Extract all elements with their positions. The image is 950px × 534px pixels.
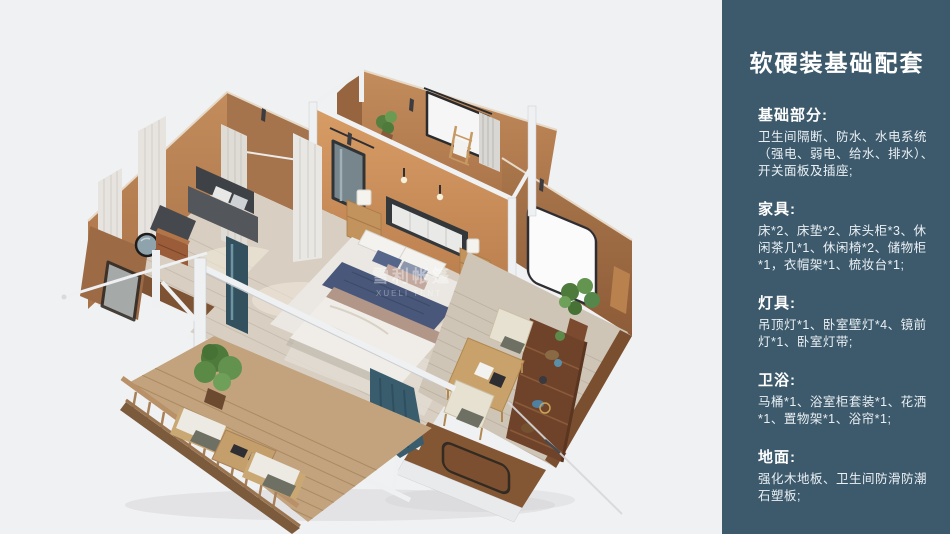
- spec-sections: 基础部分: 卫生间隔断、防水、水电系统（强电、弱电、给水、排水）、开关面板及插座…: [758, 104, 934, 505]
- section-body: 吊顶灯*1、卧室壁灯*4、镜前灯*1、卧室灯带;: [758, 317, 934, 351]
- watermark-cn: 雪利帐篷: [372, 266, 452, 286]
- spec-section-basics: 基础部分: 卫生间隔断、防水、水电系统（强电、弱电、给水、排水）、开关面板及插座…: [758, 104, 934, 180]
- spec-section-lighting: 灯具: 吊顶灯*1、卧室壁灯*4、镜前灯*1、卧室灯带;: [758, 292, 934, 351]
- section-heading: 地面:: [758, 446, 934, 467]
- section-heading: 卫浴:: [758, 369, 934, 390]
- info-sidebar: 软硬装基础配套 基础部分: 卫生间隔断、防水、水电系统（强电、弱电、给水、排水）…: [722, 0, 950, 534]
- watermark: 雪利帐篷 XUELI TENT: [372, 266, 452, 298]
- slide-root: 雪利帐篷 XUELI TENT 软硬装基础配套 基础部分: 卫生间隔断、防水、水…: [0, 0, 950, 534]
- section-body: 马桶*1、浴室柜套装*1、花洒*1、置物架*1、浴帘*1;: [758, 394, 934, 428]
- section-body: 卫生间隔断、防水、水电系统（强电、弱电、给水、排水）、开关面板及插座;: [758, 129, 934, 180]
- floorplan-render: 雪利帐篷 XUELI TENT: [0, 0, 722, 534]
- section-heading: 基础部分:: [758, 104, 934, 125]
- spec-section-bathroom: 卫浴: 马桶*1、浴室柜套装*1、花洒*1、置物架*1、浴帘*1;: [758, 369, 934, 428]
- section-body: 床*2、床垫*2、床头柜*3、休闲茶几*1、休闲椅*2、储物柜*1，衣帽架*1、…: [758, 223, 934, 274]
- bedroom-curtain: [293, 133, 322, 262]
- watermark-en: XUELI TENT: [376, 289, 442, 298]
- floorplan-render-panel: 雪利帐篷 XUELI TENT: [0, 0, 722, 534]
- spec-section-furniture: 家具: 床*2、床垫*2、床头柜*3、休闲茶几*1、休闲椅*2、储物柜*1，衣帽…: [758, 198, 934, 274]
- spec-section-flooring: 地面: 强化木地板、卫生间防滑防潮石塑板;: [758, 446, 934, 505]
- sidebar-title: 软硬装基础配套: [740, 44, 934, 78]
- section-heading: 灯具:: [758, 292, 934, 313]
- frame-post: [528, 106, 536, 216]
- annex-curtain: [479, 112, 500, 172]
- section-heading: 家具:: [758, 198, 934, 219]
- section-body: 强化木地板、卫生间防滑防潮石塑板;: [758, 471, 934, 505]
